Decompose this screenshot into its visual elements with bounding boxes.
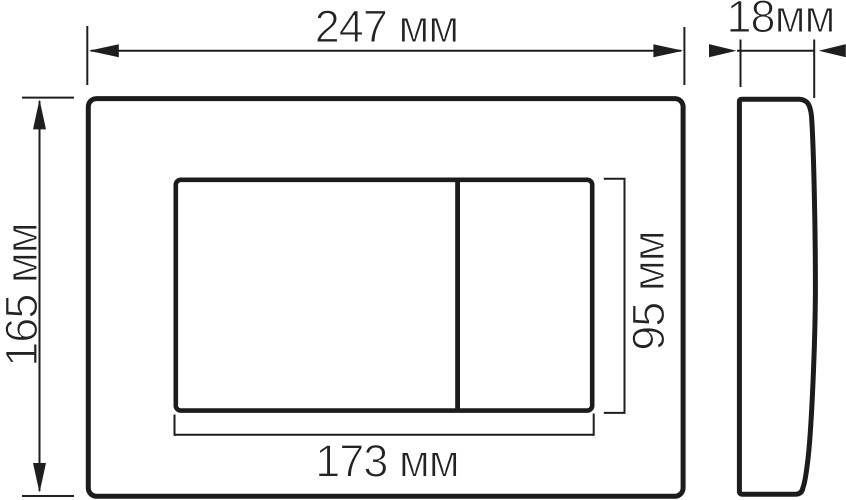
svg-text:173 мм: 173 мм	[315, 435, 458, 486]
svg-text:165 мм: 165 мм	[0, 223, 47, 366]
svg-text:95 мм: 95 мм	[623, 231, 674, 350]
svg-text:18мм: 18мм	[727, 0, 835, 42]
svg-text:247 мм: 247 мм	[315, 1, 458, 52]
